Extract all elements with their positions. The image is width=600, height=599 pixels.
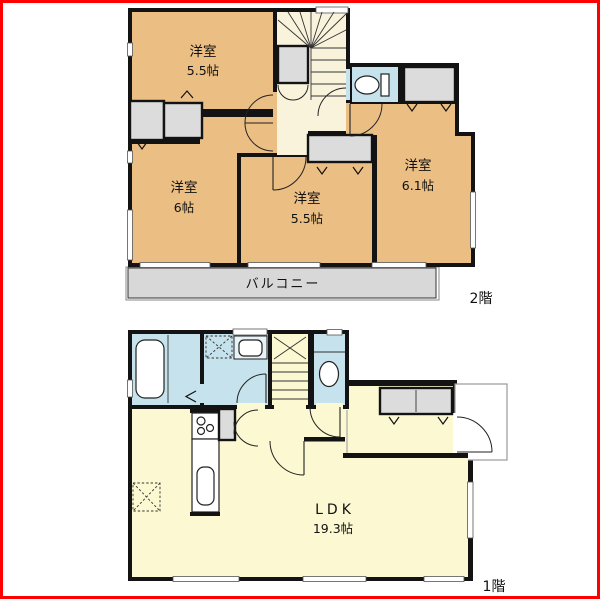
window (372, 263, 426, 268)
window (468, 482, 474, 538)
stairs-1f (272, 334, 308, 405)
room-2f-middle (241, 157, 372, 263)
kitchen-counter (190, 409, 220, 516)
window (316, 7, 348, 13)
window (128, 210, 133, 260)
window (128, 380, 133, 397)
balcony-label: バルコニー (246, 277, 321, 292)
sink-icon (197, 467, 214, 505)
closet-2f-understair (278, 46, 308, 83)
hall-ldk-wall (304, 437, 345, 442)
room-label: 洋室 (171, 179, 198, 196)
door-opening (237, 403, 265, 410)
floor-plan-drawing: 洋室 5.5帖 洋室 6帖 洋室 5.5帖 洋室 6.1帖 バルコニー 2階 (0, 0, 600, 599)
closet-2f-left-a (130, 101, 164, 140)
window (233, 329, 267, 335)
entrance-porch (455, 384, 507, 460)
stove-icon (192, 413, 219, 439)
ldk-floor (132, 458, 468, 577)
door-opening (346, 69, 350, 100)
room-size: 6.1帖 (402, 178, 434, 193)
window (128, 43, 133, 56)
floor2-label: 2階 (470, 291, 493, 307)
room-size: 6帖 (174, 200, 194, 215)
door-opening (199, 384, 205, 403)
window (424, 577, 464, 582)
window (173, 577, 239, 582)
window (303, 577, 366, 582)
closet-2f-left-b (164, 103, 202, 138)
door-opening (273, 122, 277, 153)
sink-icon (234, 336, 267, 359)
door-opening (346, 103, 350, 135)
room-label: 洋室 (190, 43, 217, 60)
closet-2f-middle-room (308, 135, 372, 162)
floor-plan-page: 洋室 5.5帖 洋室 6帖 洋室 5.5帖 洋室 6.1帖 バルコニー 2階 (0, 0, 600, 599)
window (327, 330, 342, 336)
ldk-label: LDK (315, 502, 355, 518)
window (471, 192, 476, 248)
room-size: 5.5帖 (291, 211, 323, 226)
closet-2f-right-room (404, 67, 455, 102)
door-opening (316, 403, 343, 410)
toilet-icon (355, 74, 389, 96)
room-2f-top-left (132, 12, 273, 109)
floor1-plan: LDK 19.3帖 1階 (128, 329, 508, 595)
entrance-ldk-wall (343, 453, 468, 458)
floor2-plan: 洋室 5.5帖 洋室 6帖 洋室 5.5帖 洋室 6.1帖 バルコニー 2階 (126, 7, 492, 307)
window (128, 151, 133, 163)
floor1-label: 1階 (483, 579, 506, 595)
window (140, 263, 210, 268)
room-label: 洋室 (405, 157, 432, 174)
room-size: 5.5帖 (187, 63, 219, 78)
entrance-hall-floor (343, 409, 453, 453)
window (248, 263, 320, 268)
ldk-size: 19.3帖 (313, 521, 353, 536)
room-label: 洋室 (294, 190, 321, 207)
hall-cabinet (219, 409, 235, 440)
door-opening (274, 403, 306, 410)
door-opening (273, 92, 277, 123)
